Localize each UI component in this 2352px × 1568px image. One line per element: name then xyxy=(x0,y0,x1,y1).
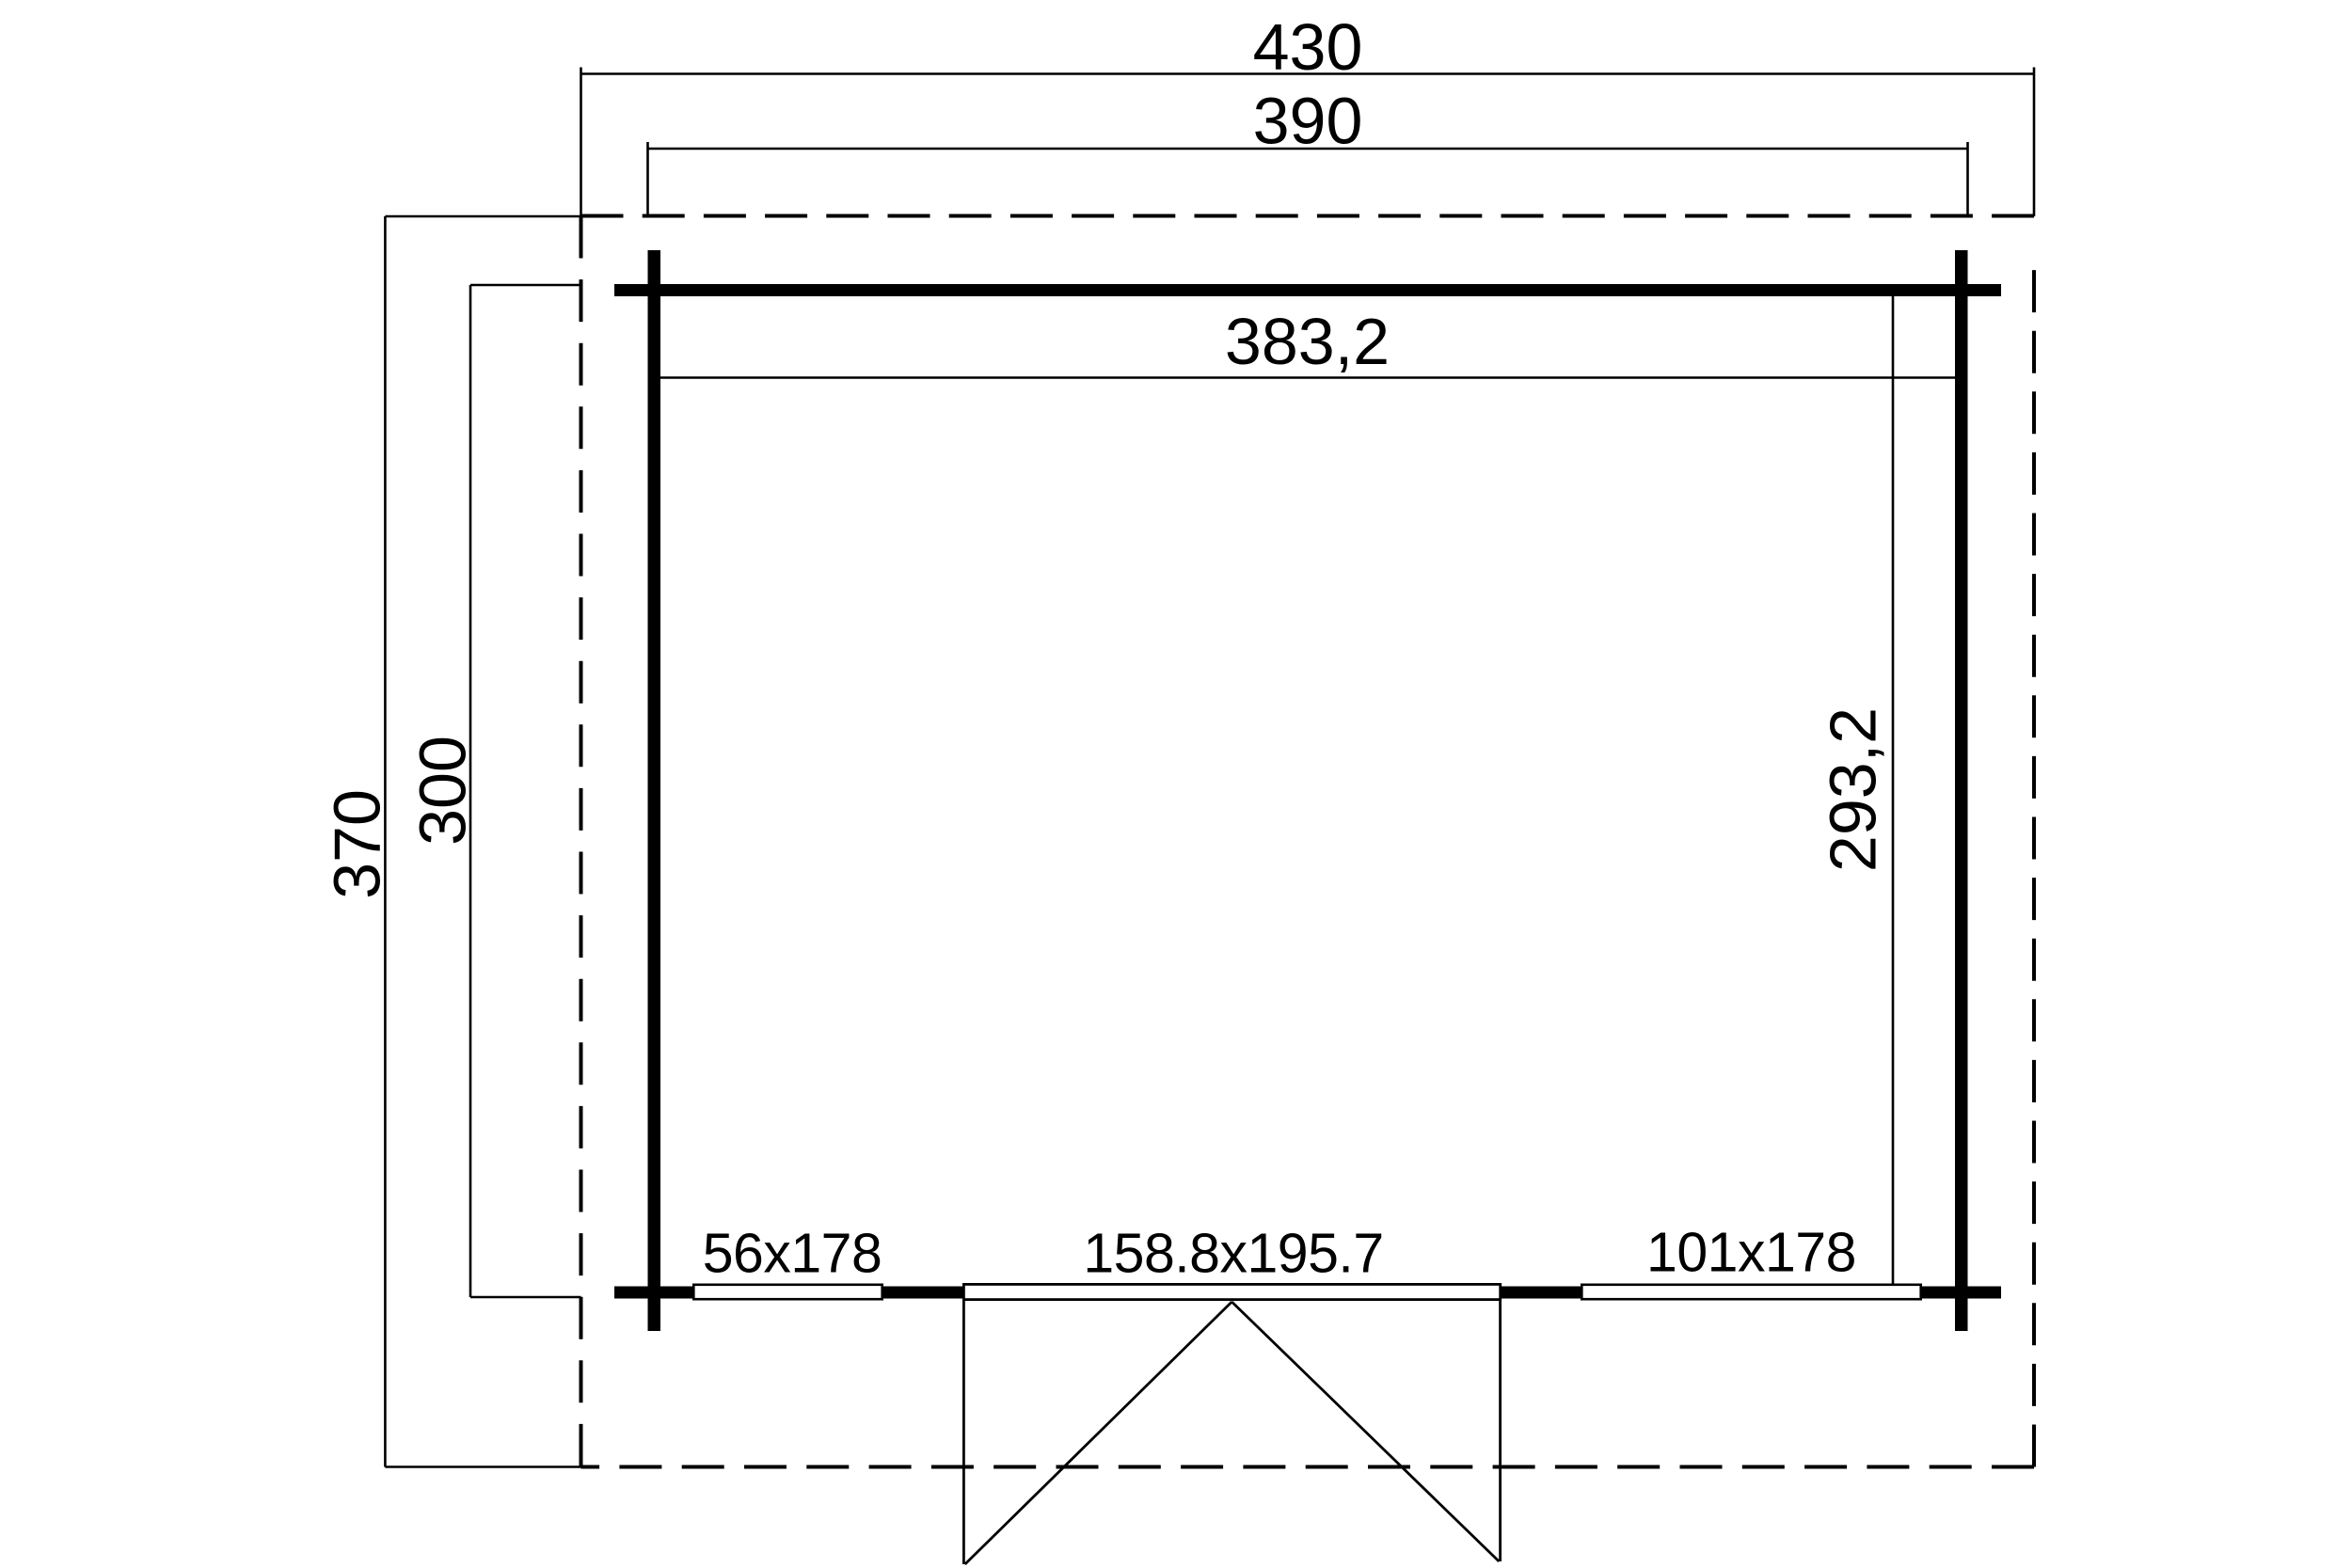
svg-text:101x178: 101x178 xyxy=(1646,1222,1856,1284)
svg-text:430: 430 xyxy=(1253,10,1363,84)
svg-text:158.8x195.7: 158.8x195.7 xyxy=(1083,1223,1383,1285)
svg-text:370: 370 xyxy=(321,789,394,899)
svg-text:390: 390 xyxy=(1253,85,1363,158)
svg-text:300: 300 xyxy=(406,736,480,846)
svg-text:293,2: 293,2 xyxy=(1817,707,1890,872)
svg-text:56x178: 56x178 xyxy=(703,1223,882,1285)
svg-text:383,2: 383,2 xyxy=(1225,305,1390,378)
